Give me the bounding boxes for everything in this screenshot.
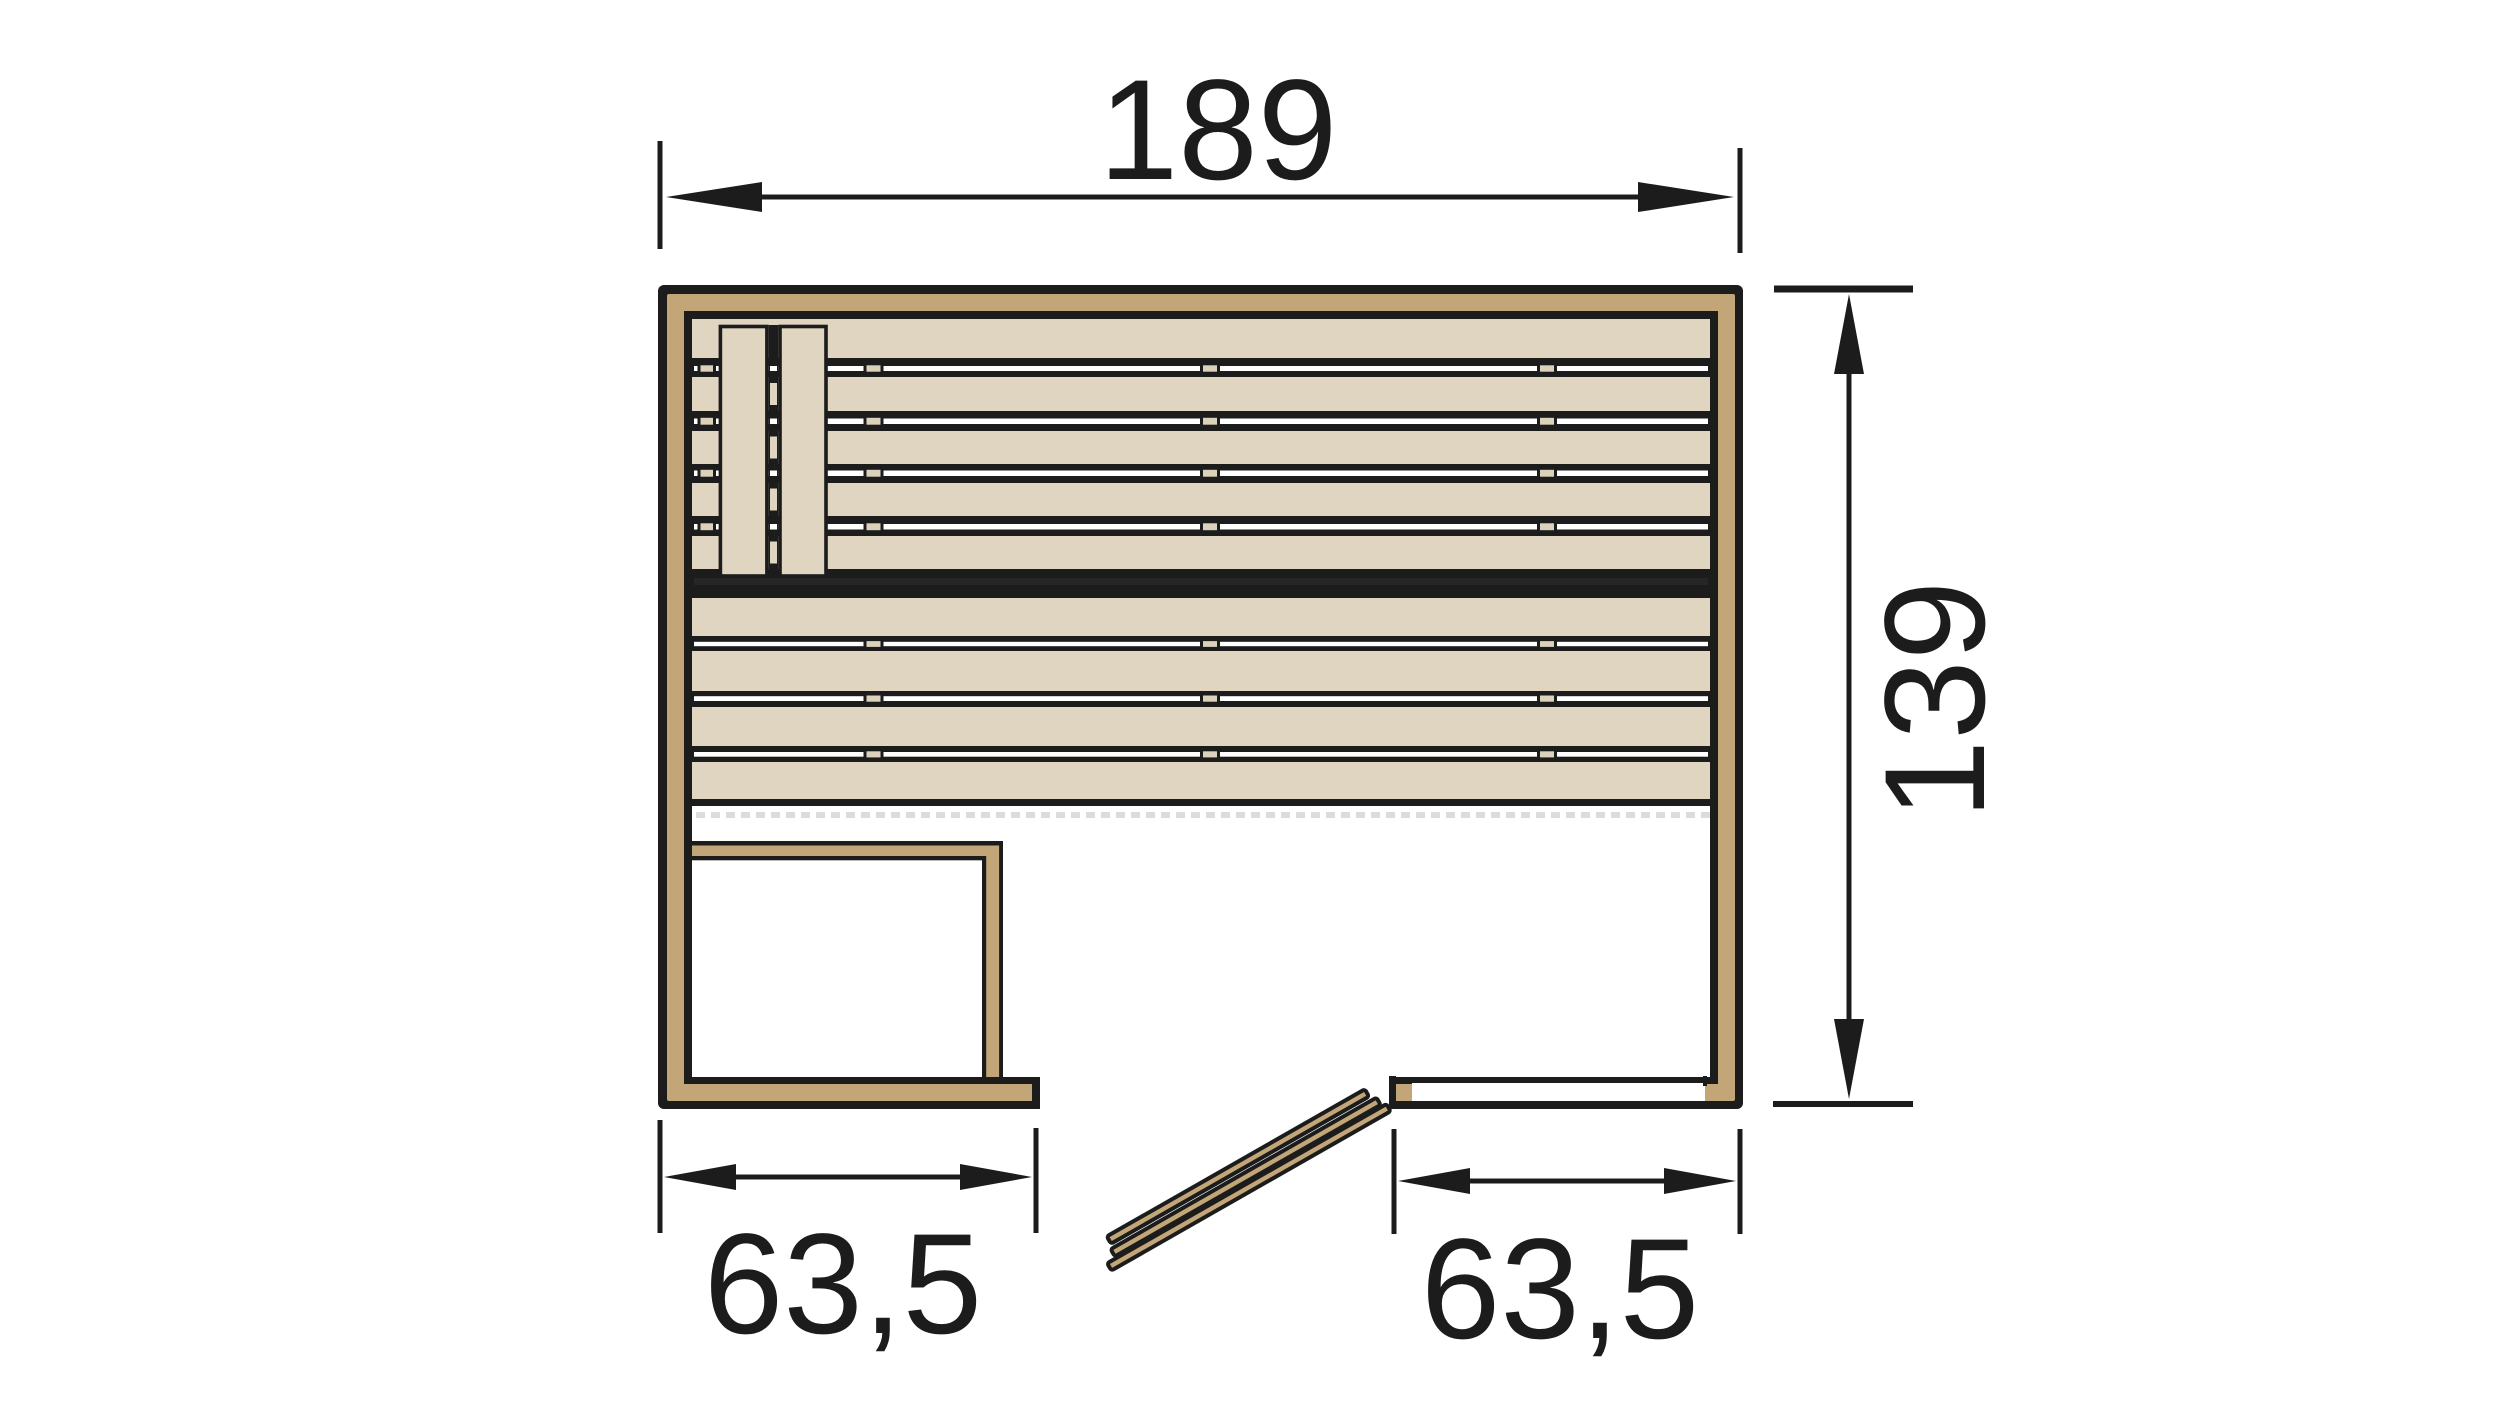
svg-text:63,5: 63,5 [1421,1210,1699,1369]
svg-text:189: 189 [1099,51,1338,210]
svg-text:63,5: 63,5 [704,1205,982,1364]
svg-text:139: 139 [1856,581,2015,820]
